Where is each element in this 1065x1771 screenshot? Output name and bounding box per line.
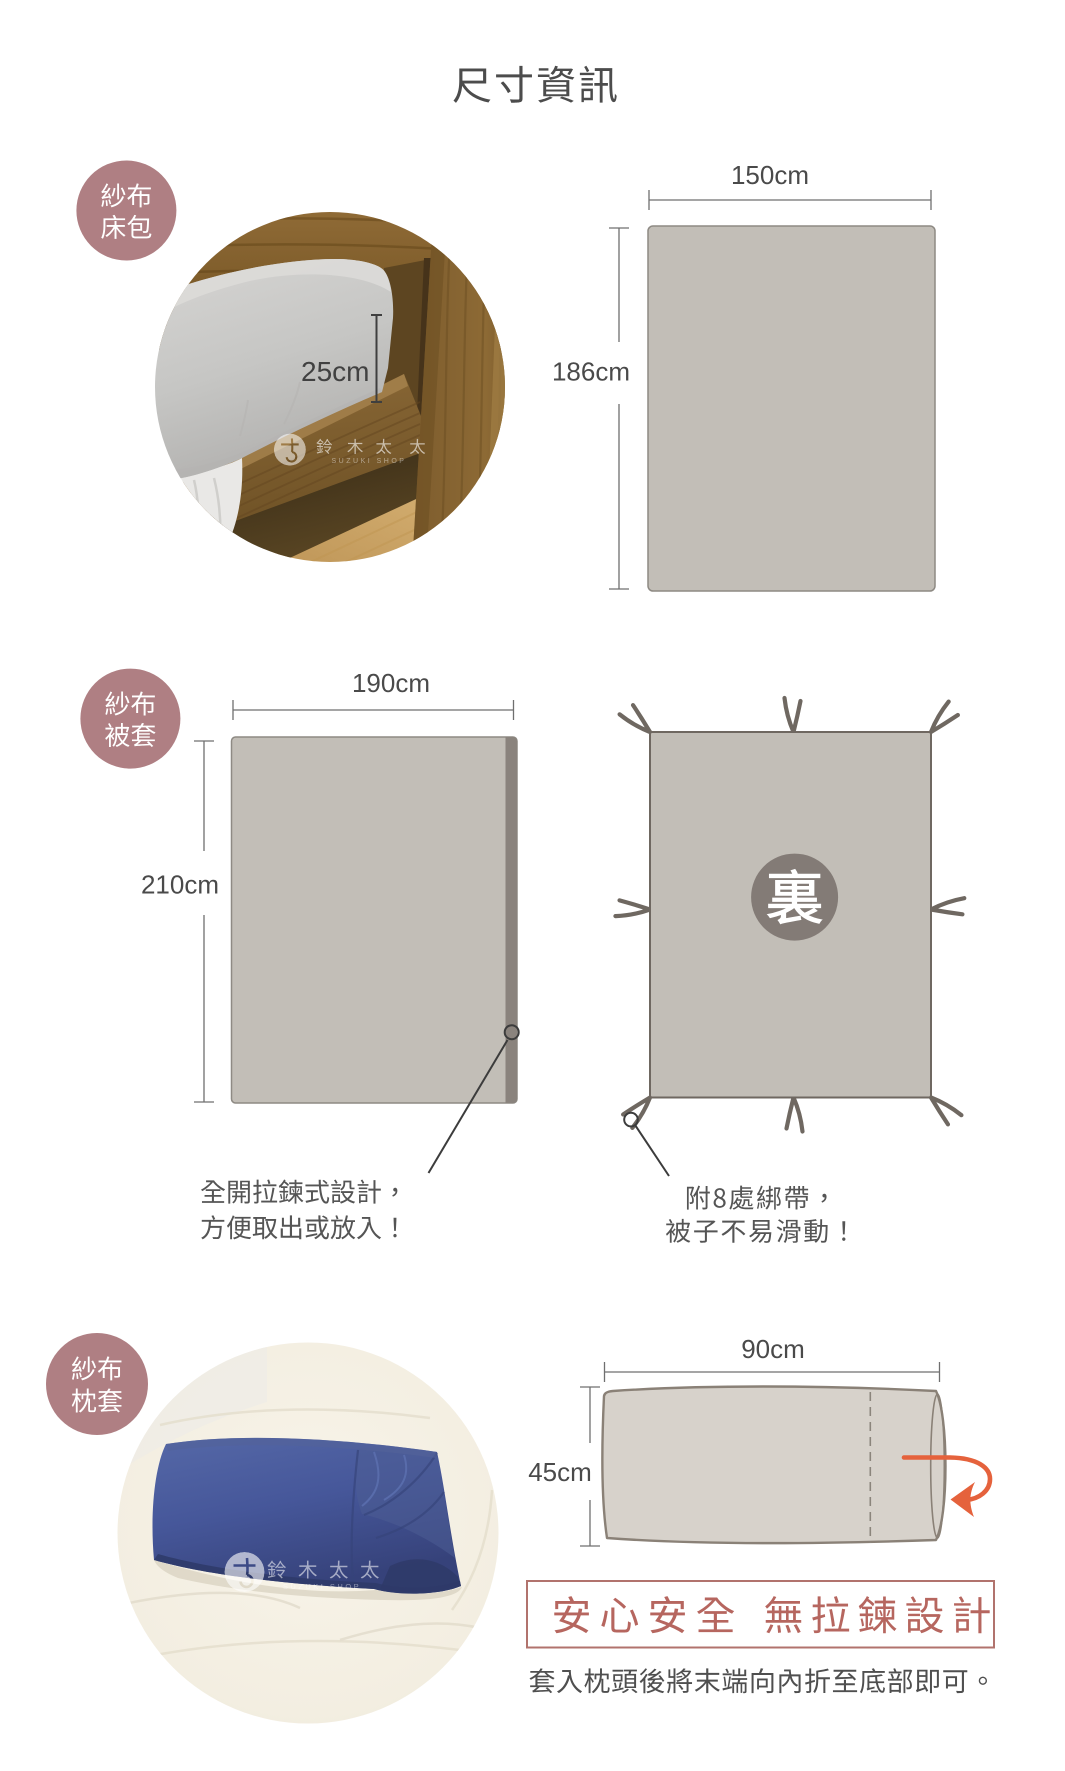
svg-text:150cm: 150cm: [731, 160, 809, 190]
svg-text:SUZUKI SHOP: SUZUKI SHOP: [283, 1582, 361, 1591]
svg-text:190cm: 190cm: [352, 668, 430, 698]
svg-text:25cm: 25cm: [301, 356, 369, 387]
svg-text:SUZUKI SHOP: SUZUKI SHOP: [332, 458, 407, 465]
svg-text:186cm: 186cm: [552, 357, 630, 387]
svg-text:210cm: 210cm: [141, 870, 219, 900]
svg-text:90cm: 90cm: [741, 1334, 805, 1364]
svg-text:45cm: 45cm: [528, 1457, 592, 1487]
